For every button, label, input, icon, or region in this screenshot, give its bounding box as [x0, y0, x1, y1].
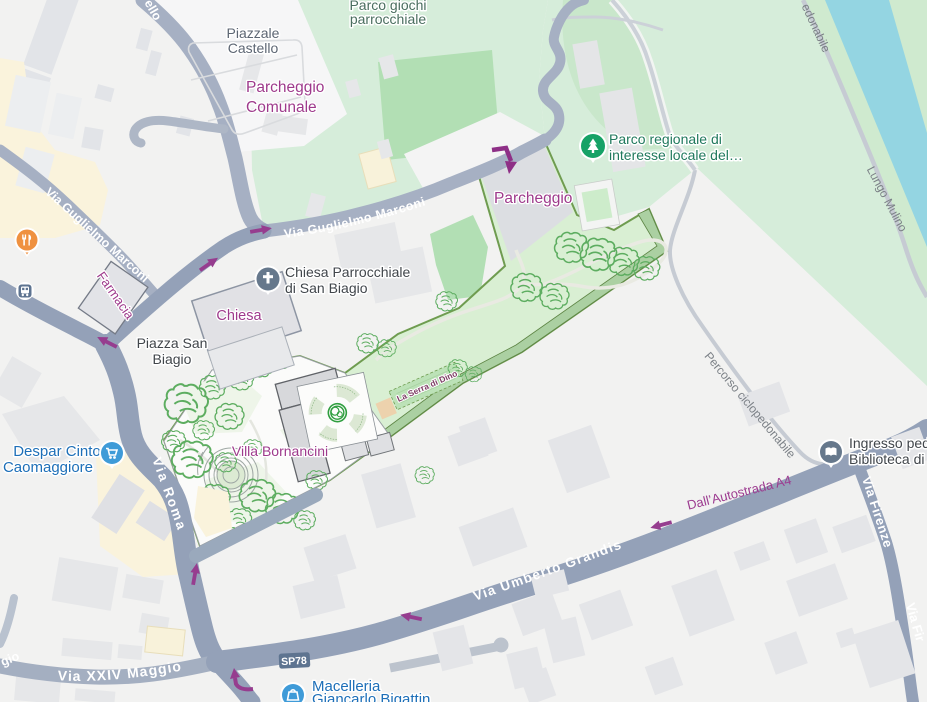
- svg-text:Chiesa Parrocchiale: Chiesa Parrocchiale: [285, 264, 410, 280]
- svg-text:Villa Bornancini: Villa Bornancini: [232, 443, 328, 459]
- svg-text:di San Biagio: di San Biagio: [285, 280, 368, 296]
- svg-text:interesse locale del…: interesse locale del…: [609, 147, 743, 163]
- svg-text:Parcheggio: Parcheggio: [494, 190, 572, 207]
- svg-text:Despar Cinto: Despar Cinto: [13, 443, 101, 460]
- svg-text:Piazza San: Piazza San: [137, 335, 208, 351]
- svg-text:Caomaggiore: Caomaggiore: [3, 459, 93, 476]
- svg-text:Comunale: Comunale: [246, 99, 317, 116]
- svg-text:Castello: Castello: [228, 40, 279, 56]
- svg-text:Parco regionale di: Parco regionale di: [609, 131, 722, 147]
- svg-text:Ingresso pedo: Ingresso pedo: [849, 435, 927, 451]
- svg-text:SP78: SP78: [281, 655, 307, 668]
- svg-text:Chiesa: Chiesa: [216, 308, 262, 324]
- svg-text:Giancarlo Bigattin: Giancarlo Bigattin: [312, 691, 430, 702]
- svg-text:Biblioteca di B: Biblioteca di B: [849, 451, 927, 467]
- svg-text:Parcheggio: Parcheggio: [246, 79, 324, 96]
- svg-text:Biagio: Biagio: [153, 351, 192, 367]
- svg-text:Piazzale: Piazzale: [227, 25, 280, 41]
- svg-text:parrocchiale: parrocchiale: [350, 11, 426, 27]
